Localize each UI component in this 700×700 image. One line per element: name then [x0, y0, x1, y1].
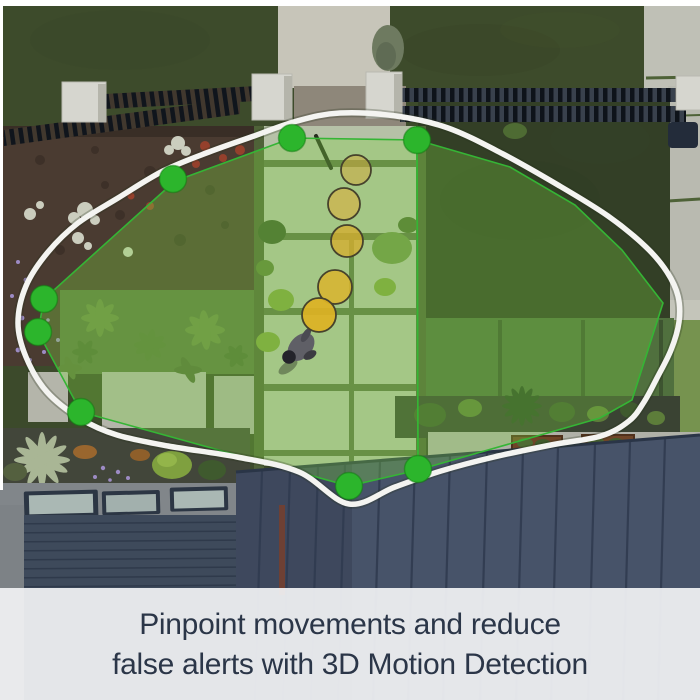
zone-vertex-dot [336, 473, 363, 500]
zone-vertex-dot [25, 319, 52, 346]
product-image: Pinpoint movements and reduce false aler… [0, 0, 700, 700]
image-border-left [0, 6, 3, 490]
caption-line2: false alerts with 3D Motion Detection [112, 645, 588, 684]
motion-trail-point [331, 225, 363, 257]
zone-vertex-dot [404, 127, 431, 154]
image-border-top [0, 0, 700, 6]
zone-vertex-dot [160, 166, 187, 193]
caption-line1: Pinpoint movements and reduce [139, 605, 561, 644]
zone-vertex-dot [68, 399, 95, 426]
motion-trail-point [302, 298, 336, 332]
zone-vertex-dot [405, 456, 432, 483]
caption-banner: Pinpoint movements and reduce false aler… [0, 588, 700, 700]
zone-vertex-dot [279, 125, 306, 152]
motion-trail-point [328, 188, 360, 220]
zone-vertex-dot [31, 286, 58, 313]
motion-trail-point [341, 155, 371, 185]
